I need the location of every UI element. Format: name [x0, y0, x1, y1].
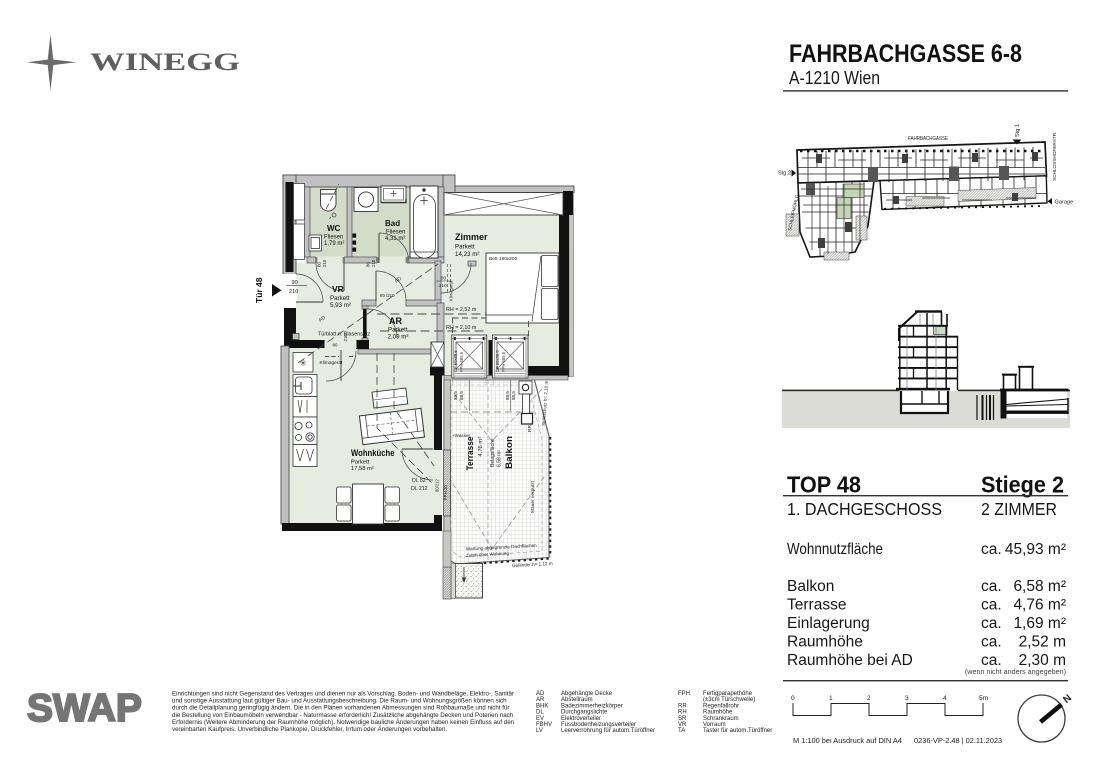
svg-text:80/212: 80/212 [435, 479, 440, 492]
svg-text:DF 60x88,5: DF 60x88,5 [495, 350, 500, 372]
svg-text:1,79 m²: 1,79 m² [324, 241, 344, 247]
svg-text:LV: LV [536, 728, 543, 734]
svg-text:FBHV: FBHV [536, 722, 552, 728]
svg-text:88,5: 88,5 [511, 391, 516, 400]
svg-text:Terrasse: Terrasse [787, 597, 846, 614]
svg-text:durch die Detailplanung gering: durch die Detailplanung geringfügig ände… [172, 705, 509, 712]
svg-text:DL 212: DL 212 [411, 486, 428, 492]
svg-text:80: 80 [380, 293, 385, 298]
svg-text:vereinbarten Kaufpreis. Unverb: vereinbarten Kaufpreis. Unverbindliche P… [172, 726, 447, 733]
svg-text:0: 0 [791, 695, 795, 702]
svg-text:Einlagerung: Einlagerung [787, 615, 870, 632]
svg-text:88,5: 88,5 [505, 391, 510, 400]
svg-text:Mauer verputzt: Mauer verputzt [530, 480, 536, 513]
svg-text:2: 2 [867, 695, 871, 702]
svg-text:EV: EV [536, 716, 544, 722]
svg-text:ca.: ca. [981, 634, 1002, 651]
svg-text:Abgehängte Decke: Abgehängte Decke [561, 691, 613, 697]
svg-text:90: 90 [292, 280, 298, 286]
svg-text:Klimagerät: Klimagerät [320, 360, 344, 366]
svg-text:SR: SR [678, 716, 687, 722]
svg-text:Einrichtungen sind nicht Gegen: Einrichtungen sind nicht Gegenstand des … [172, 691, 514, 698]
svg-text:Regenfallrohr: Regenfallrohr [703, 703, 739, 709]
svg-text:SWAP: SWAP [27, 687, 142, 730]
svg-text:FPH: FPH [678, 691, 690, 697]
svg-text:Wohnnutzfläche: Wohnnutzfläche [787, 541, 883, 558]
svg-text:Stg.1: Stg.1 [1015, 124, 1021, 137]
svg-text:1. DACHGESCHOSS: 1. DACHGESCHOSS [787, 499, 942, 519]
svg-text:DL: DL [536, 710, 544, 716]
svg-text:DF 60x88,5: DF 60x88,5 [453, 350, 458, 372]
svg-text:80: 80 [366, 262, 371, 267]
svg-text:FPH 20: FPH 20 [443, 485, 448, 500]
svg-text:80: 80 [317, 262, 322, 267]
svg-text:Erfordernis (Weitere Abminderu: Erfordernis (Weitere Abminderung der Rau… [172, 719, 515, 726]
svg-text:2,09 m²: 2,09 m² [388, 334, 409, 341]
svg-text:17,58 m²: 17,58 m² [351, 466, 374, 472]
svg-text:Stg.2: Stg.2 [778, 171, 791, 177]
svg-text:210: 210 [289, 289, 298, 295]
svg-text:A-1210 Wien: A-1210 Wien [789, 67, 880, 88]
svg-text:Parkett: Parkett [388, 327, 408, 334]
svg-text:45,93 m²: 45,93 m² [1005, 541, 1066, 558]
svg-text:6,58 m²: 6,58 m² [1013, 578, 1066, 595]
svg-text:6,58 m²: 6,58 m² [497, 450, 503, 467]
svg-text:DL 82: DL 82 [412, 478, 426, 484]
svg-text:210: 210 [322, 259, 327, 267]
svg-text:(±3cm Türschwelle): (±3cm Türschwelle) [703, 697, 755, 703]
svg-text:RR: RR [678, 703, 687, 709]
svg-text:VR: VR [332, 284, 344, 294]
svg-text:88,5: 88,5 [453, 391, 458, 400]
svg-text:WC: WC [327, 224, 341, 233]
svg-text:ca.: ca. [981, 578, 1002, 595]
svg-text:RR: RR [527, 425, 533, 432]
svg-text:Tür 48: Tür 48 [254, 277, 264, 303]
svg-text:Garage: Garage [1055, 200, 1074, 206]
svg-text:Wohnküche: Wohnküche [351, 448, 395, 458]
svg-text:Parkett: Parkett [330, 295, 350, 302]
svg-text:Elektroverteiler: Elektroverteiler [561, 716, 601, 722]
svg-text:Raumhöhe: Raumhöhe [787, 634, 863, 651]
svg-text:Stiege 2: Stiege 2 [981, 472, 1064, 498]
svg-text:Leerverrohrung für autom.Türöf: Leerverrohrung für autom.Türöffner [561, 728, 655, 734]
svg-text:ca.: ca. [981, 615, 1002, 632]
svg-text:Durchgangslichte: Durchgangslichte [561, 710, 608, 716]
svg-text:VR: VR [678, 722, 687, 728]
svg-text:Raumhöhe: Raumhöhe [703, 710, 733, 716]
svg-text:TOP 48: TOP 48 [787, 472, 861, 498]
svg-text:Parkett: Parkett [455, 244, 475, 251]
svg-text:Bett 180x200: Bett 180x200 [489, 256, 518, 262]
svg-text:Zimmer: Zimmer [455, 232, 488, 242]
svg-text:1: 1 [829, 695, 833, 702]
svg-text:Badezimmerheizkörper: Badezimmerheizkörper [561, 703, 623, 709]
svg-text:ca.: ca. [981, 541, 1002, 558]
svg-text:Balkon: Balkon [787, 578, 834, 595]
svg-text:FAHRBACHGASSE 6-8: FAHRBACHGASSE 6-8 [789, 40, 1022, 68]
svg-text:Fussbodenheizungsverteiler: Fussbodenheizungsverteiler [561, 722, 636, 728]
svg-text:210: 210 [371, 259, 376, 267]
svg-text:RH = 2,52 m: RH = 2,52 m [446, 307, 477, 313]
svg-text:Fertigparapethöhe: Fertigparapethöhe [703, 691, 753, 697]
svg-text:Schrankraum: Schrankraum [703, 716, 739, 722]
svg-text:TA: TA [678, 728, 685, 734]
svg-text:die Bestellung von Einbaumöbel: die Bestellung von Einbaumöbeln verwendb… [172, 712, 514, 719]
svg-text:Abstellraum: Abstellraum [561, 697, 593, 703]
svg-text:/210: /210 [386, 293, 395, 298]
svg-text:AR: AR [389, 316, 402, 326]
svg-text:2 ZIMMER: 2 ZIMMER [981, 499, 1057, 519]
svg-text:ca.: ca. [981, 597, 1002, 614]
svg-text:Balkon: Balkon [504, 436, 515, 469]
svg-text:FAHRBACHGASSE: FAHRBACHGASSE [908, 136, 948, 142]
svg-text:FPH 685,5: FPH 685,5 [501, 351, 506, 372]
svg-text:5m: 5m [979, 695, 989, 702]
svg-text:Vorraum: Vorraum [703, 722, 726, 728]
svg-text:RH: RH [678, 710, 687, 716]
svg-text:80: 80 [333, 343, 338, 348]
svg-text:SCHLOSSHOFERSTR.: SCHLOSSHOFERSTR. [1052, 132, 1057, 182]
svg-text:Raumhöhe bei AD: Raumhöhe bei AD [787, 652, 913, 669]
svg-text:WINEGG: WINEGG [90, 49, 240, 76]
svg-text:Klimagerät: Klimagerät [449, 280, 454, 301]
svg-text:Fliesen: Fliesen [324, 235, 343, 241]
svg-text:4: 4 [943, 695, 947, 702]
svg-text:4,31 m²: 4,31 m² [385, 236, 405, 242]
svg-text:4,76 m²: 4,76 m² [1013, 597, 1066, 614]
svg-text:BHK: BHK [536, 703, 548, 709]
svg-text:M 1:100 bei Ausdruck auf DIN A: M 1:100 bei Ausdruck auf DIN A4 [793, 736, 902, 745]
svg-text:210: 210 [343, 334, 348, 342]
svg-text:88,5: 88,5 [459, 391, 464, 400]
svg-text:AD: AD [536, 691, 545, 697]
svg-text:Parkett: Parkett [351, 460, 370, 466]
svg-text:0236-VP-2.48 | 02.11.2023: 0236-VP-2.48 | 02.11.2023 [914, 736, 1002, 745]
svg-text:210: 210 [439, 283, 447, 288]
svg-text:Bad: Bad [385, 219, 400, 228]
svg-text:Belagsfläche: Belagsfläche [490, 438, 496, 467]
svg-text:Fliesen: Fliesen [386, 230, 405, 236]
svg-text:14,23 m²: 14,23 m² [455, 251, 479, 258]
svg-text:(wenn nicht anders angegeben): (wenn nicht anders angegeben) [965, 667, 1066, 676]
svg-text:AR: AR [536, 697, 545, 703]
svg-text:+Wasser: +Wasser [452, 433, 471, 438]
svg-text:1,69 m²: 1,69 m² [1013, 615, 1066, 632]
svg-text:4,76 m²: 4,76 m² [478, 437, 484, 457]
svg-text:Terrasse: Terrasse [465, 437, 476, 471]
svg-text:2,52 m: 2,52 m [1019, 634, 1066, 651]
svg-text:Taster für autom.Türöffner: Taster für autom.Türöffner [703, 728, 772, 734]
svg-text:und sonstige Ausstattung laut: und sonstige Ausstattung laut gültiger B… [172, 698, 507, 705]
svg-text:80: 80 [441, 276, 447, 281]
svg-text:FPH 685,5: FPH 685,5 [459, 351, 464, 372]
svg-text:RH = 2,10 m: RH = 2,10 m [446, 325, 477, 331]
svg-text:3: 3 [905, 695, 909, 702]
svg-text:5,93 m²: 5,93 m² [330, 302, 351, 309]
